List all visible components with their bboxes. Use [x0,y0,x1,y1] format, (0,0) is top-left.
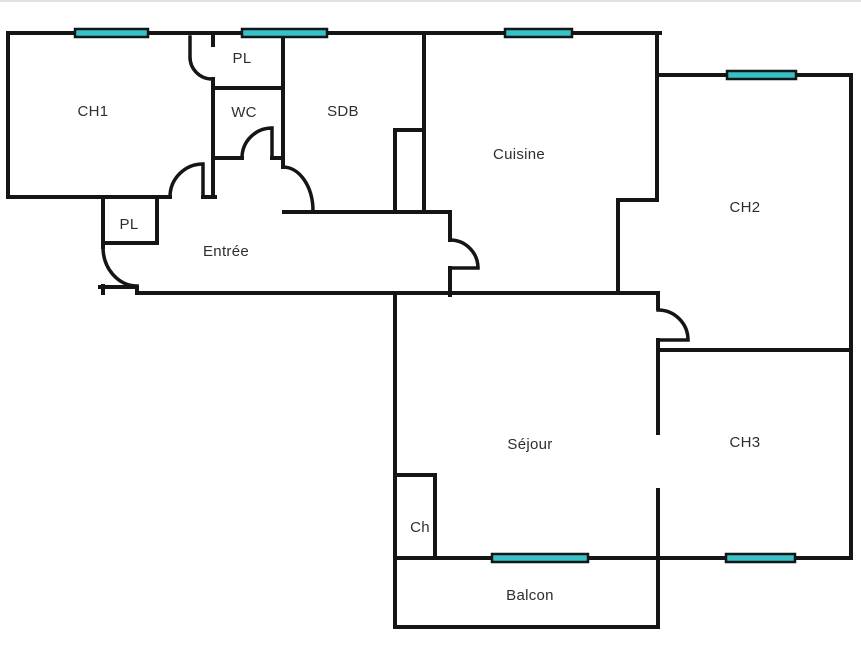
door-sdb [283,167,313,211]
wall-south-balcon [395,558,851,627]
wall-pl-hall-closet [103,197,157,293]
room-label-balcon: Balcon [506,587,554,604]
room-label-ch3: CH3 [730,434,761,451]
door-ch1-entree [170,164,203,197]
room-label-pl-top: PL [233,50,252,67]
room-label-pl-hall: PL [120,216,139,233]
room-label-sdb: SDB [327,103,359,120]
room-label-entree: Entrée [203,243,249,260]
room-label-sejour: Séjour [507,436,552,453]
window-sejour-south [492,554,588,562]
door-wc [242,128,272,158]
floor-plan: CH1 PL WC SDB Cuisine CH2 Entrée PL Séjo… [0,0,861,658]
wall-sejour-ch-closet [395,293,435,627]
room-label-cuisine: Cuisine [493,146,545,163]
door-front-entree [103,247,137,286]
room-label-ch1: CH1 [78,103,109,120]
wall-ch1 [8,33,215,197]
door-ch1-pl [190,37,212,79]
window-pl-sdb-north [242,29,327,37]
wall-corridor-south [100,287,658,293]
wall-cuisine [450,33,657,295]
wall-ch2 [657,75,851,558]
window-cuisine-north [505,29,572,37]
door-cuisine [450,240,478,268]
floor-plan-drawing: CH1 PL WC SDB Cuisine CH2 Entrée PL Séjo… [0,0,861,658]
walls [8,33,851,627]
room-label-ch-closet: Ch [410,519,430,536]
window-ch2-north [727,71,796,79]
window-ch3-south [726,554,795,562]
room-label-wc: WC [231,104,257,121]
window-ch1-north [75,29,148,37]
room-label-ch2: CH2 [730,199,761,216]
door-ch2 [658,310,688,340]
